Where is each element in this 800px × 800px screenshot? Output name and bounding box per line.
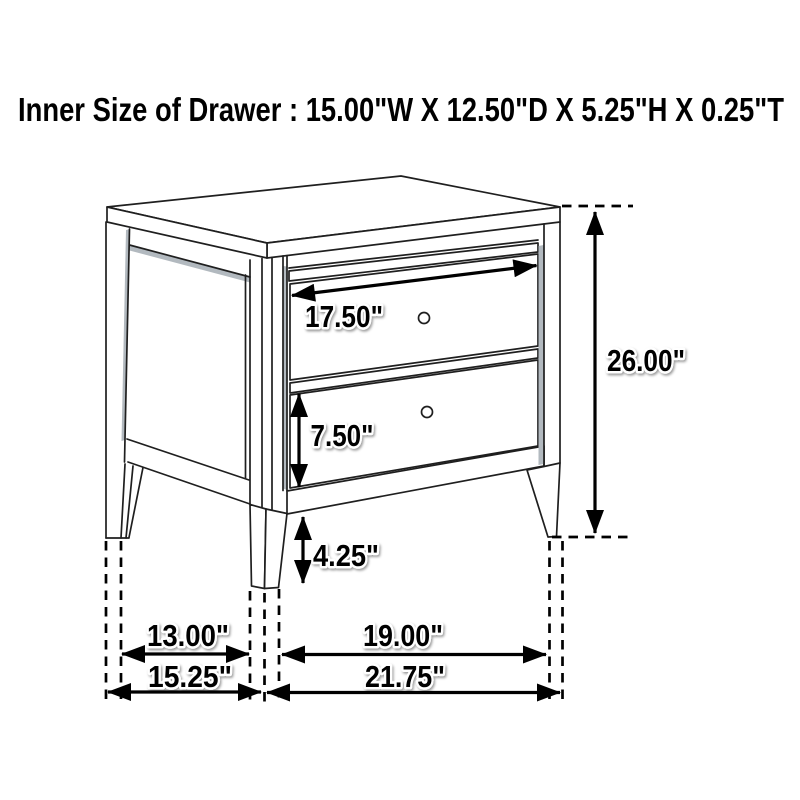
furniture-dimension-diagram-page: Inner Size of Drawer : 15.00"W X 12.50"D… (0, 0, 800, 800)
label-overall-depth: 15.25" (148, 659, 232, 694)
label-drawer-width: 17.50" (305, 299, 383, 334)
page-title: Inner Size of Drawer : 15.00"W X 12.50"D… (18, 91, 784, 128)
label-foot-height: 4.25" (313, 538, 379, 573)
label-overall-height: 26.00" (607, 343, 685, 378)
front-left-leg-side-face (250, 505, 266, 589)
label-drawer-height: 7.50" (311, 418, 374, 453)
bottom-drawer-knob (422, 407, 433, 418)
nightstand-dimension-diagram: Inner Size of Drawer : 15.00"W X 12.50"D… (0, 0, 800, 800)
label-inner-depth: 13.00" (147, 618, 229, 653)
top-drawer-knob (419, 313, 430, 324)
label-overall-width: 21.75" (365, 659, 445, 694)
label-inner-width: 19.00" (363, 618, 443, 653)
right-post-shading (539, 245, 544, 465)
